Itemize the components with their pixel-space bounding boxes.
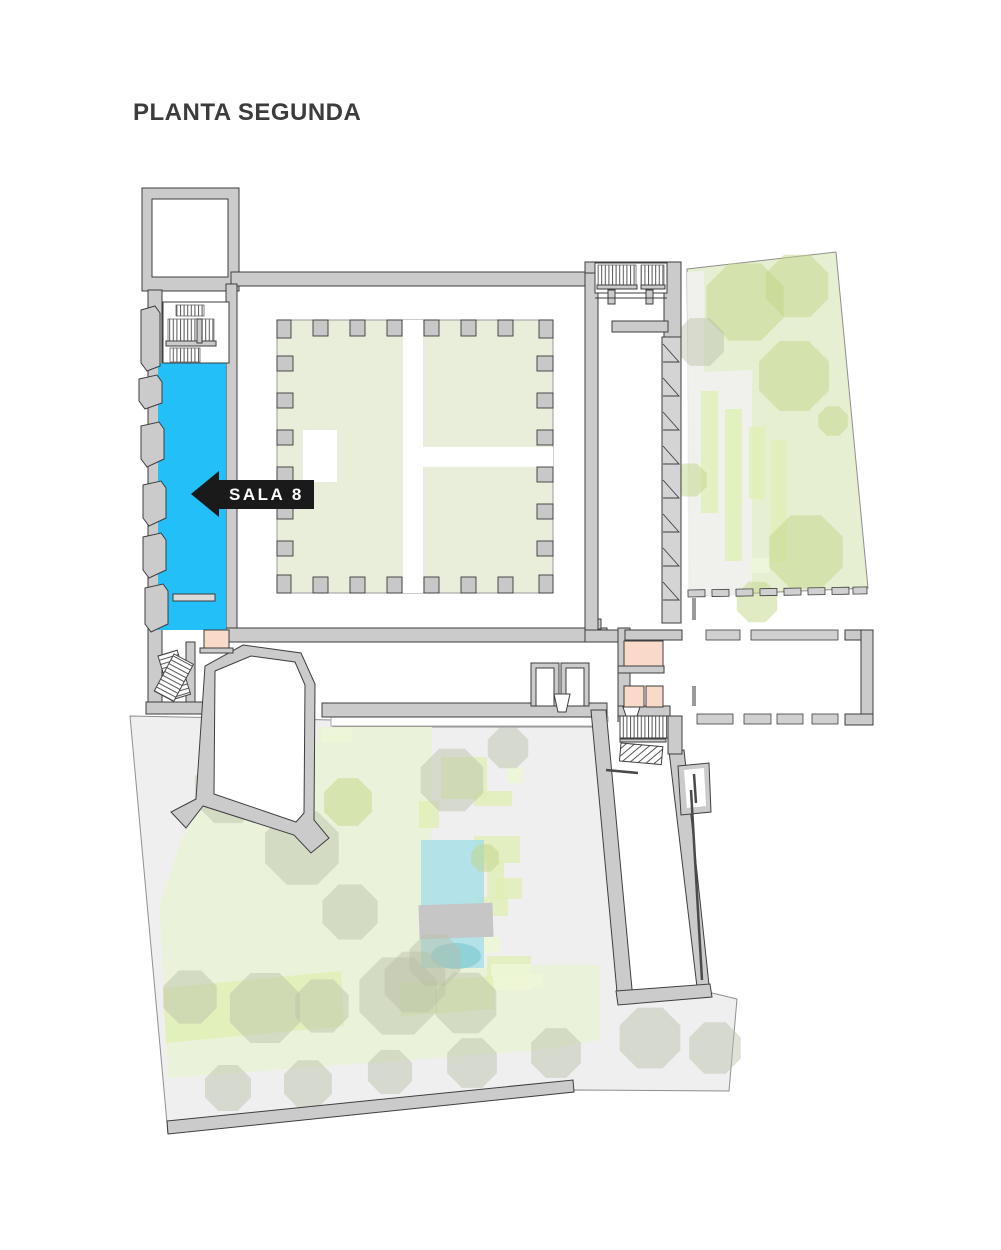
sala-8-label-text: SALA 8: [219, 480, 314, 509]
service-room-pink: [646, 686, 663, 707]
bench: [173, 594, 215, 601]
arrow-left-icon: [191, 471, 219, 517]
elevator-rooms: [531, 663, 589, 712]
floor-plan-page: PLANTA SEGUNDA SALA 8: [0, 0, 1001, 1250]
north-stairs: [595, 263, 667, 304]
service-room-pink: [624, 686, 644, 707]
service-room-pink: [204, 630, 229, 649]
louvered-wall: [662, 337, 681, 623]
wing-stairs: [619, 716, 668, 765]
east-corridor-left-wall: [585, 262, 598, 642]
west-stair-unit: [163, 302, 229, 363]
east-garden: [673, 252, 868, 622]
north-corridor-wall: [231, 272, 597, 286]
central-courtyard: [277, 320, 553, 593]
sala-8-label[interactable]: SALA 8: [191, 471, 314, 517]
floor-plan: [0, 0, 1001, 1250]
service-room-pink: [624, 641, 663, 669]
page-title: PLANTA SEGUNDA: [133, 99, 361, 127]
pool-bridge: [418, 903, 493, 940]
garden-terrace-strip: [331, 717, 608, 726]
